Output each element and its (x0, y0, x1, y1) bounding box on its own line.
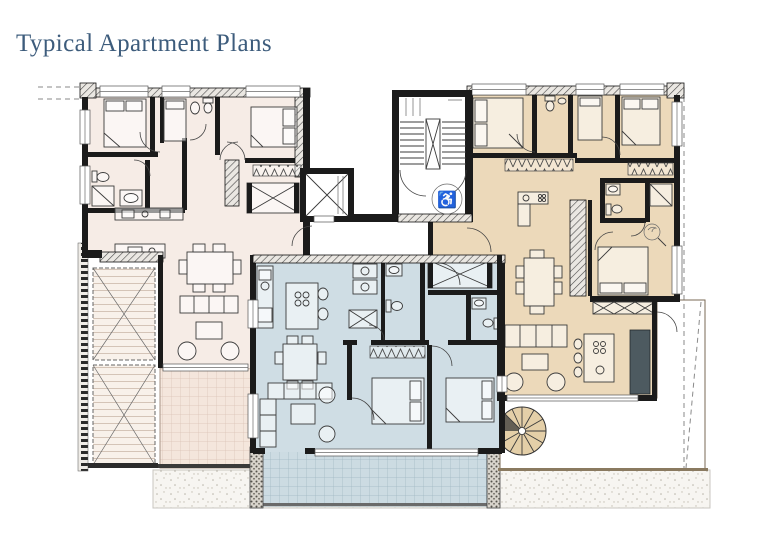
shaft-closet (247, 183, 299, 213)
closet-strip (593, 302, 655, 314)
kitchen-island (574, 334, 614, 382)
bed (473, 98, 523, 148)
bed (622, 97, 660, 145)
wheelchair-icon: ♿ (437, 190, 457, 209)
bed (104, 99, 146, 147)
pillar-left (250, 447, 263, 508)
bed (446, 378, 494, 422)
pergola-area (78, 243, 158, 471)
spiral-staircase (498, 407, 546, 455)
bed (251, 107, 297, 147)
floor-plan-page: { "title": "Typical Apartment Plans", "c… (0, 0, 768, 534)
floor-plan-drawing: ♿ (0, 0, 768, 534)
pillar-right (487, 447, 500, 508)
elevator (300, 168, 354, 222)
single-bed (578, 96, 602, 140)
kitchen-tall-counter (630, 330, 650, 394)
single-bed (164, 99, 186, 141)
bed (372, 378, 424, 424)
bed (598, 247, 648, 295)
kitchen-counter (257, 266, 273, 328)
terrace-left (158, 368, 254, 468)
